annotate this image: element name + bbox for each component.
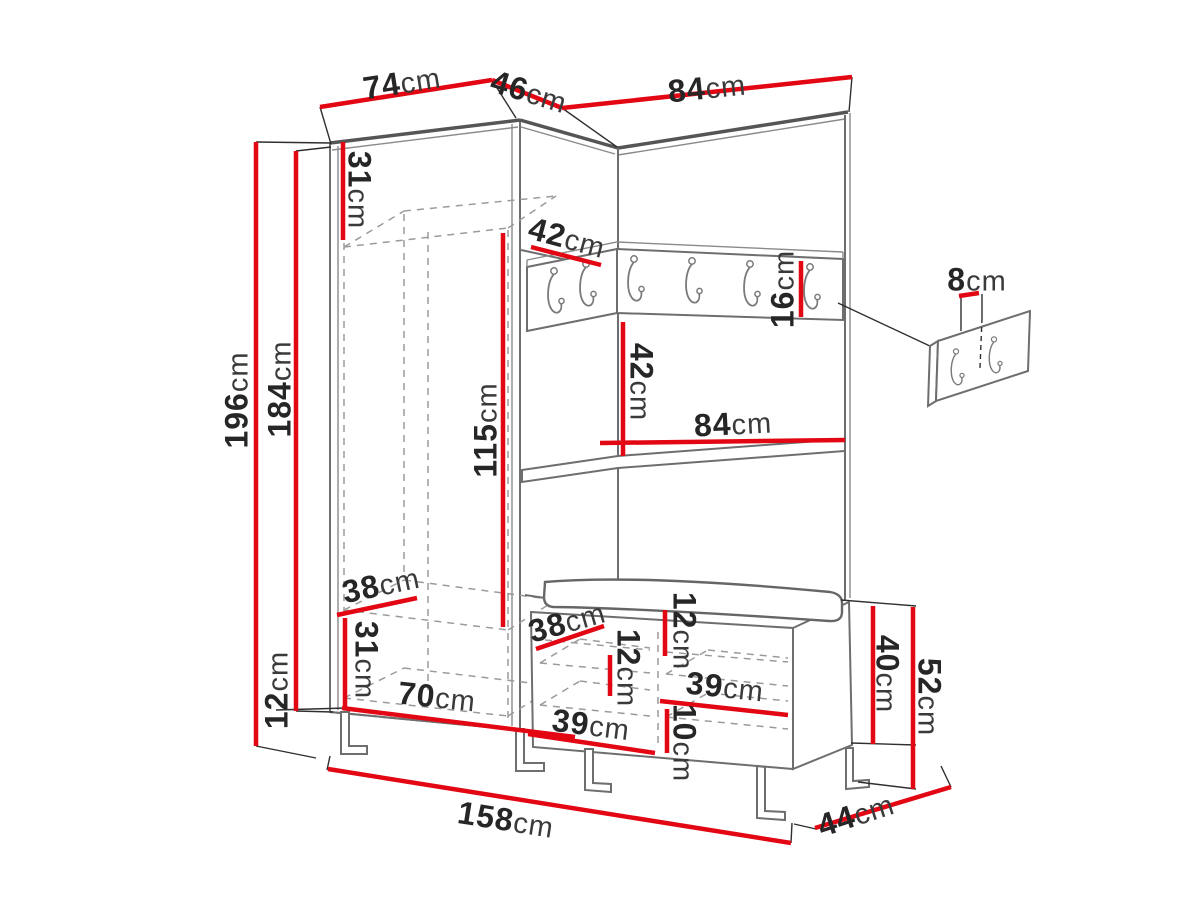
corner-and-back-panel — [520, 112, 850, 600]
open-shelf — [522, 439, 845, 482]
dim-label-shelf-width: 84cm — [693, 405, 773, 442]
furniture-dimension-diagram: 74cm 46cm 84cm 31cm 196cm 184cm 12cm 115… — [0, 0, 1200, 900]
dim-label-bench-bottom-clearance: 10cm — [668, 704, 701, 782]
dim-label-hook-rail-height: 16cm — [767, 250, 800, 328]
dimension-line-158 — [328, 769, 791, 843]
dim-label-bottom-shelf-width: 70cm — [396, 676, 477, 717]
dim-label-upper-shelf-height: 31cm — [343, 151, 376, 229]
dim-label-bottom-compartment-height: 31cm — [350, 621, 383, 699]
dim-label-leg-height: 12cm — [261, 651, 294, 729]
diagram-canvas — [0, 0, 1200, 900]
dim-label-wall-panel-offset: 8cm — [947, 264, 1006, 297]
dim-label-cushion-height: 12cm — [668, 592, 701, 670]
dim-label-open-shelf-height: 42cm — [625, 343, 658, 421]
dim-label-bench-compartment-right: 39cm — [684, 666, 765, 707]
dim-label-bench-shelf-spacing: 12cm — [612, 629, 645, 707]
dim-label-top-width-right: 84cm — [666, 67, 747, 108]
dim-label-carcass-height: 184cm — [264, 340, 297, 437]
dim-label-hanging-space-height: 115cm — [470, 382, 503, 477]
dim-label-total-height: 196cm — [221, 351, 254, 448]
dim-label-bench-cabinet-height: 40cm — [871, 635, 904, 713]
wall-hook-panel — [838, 294, 1030, 406]
dim-label-bench-total-height: 52cm — [913, 658, 946, 736]
